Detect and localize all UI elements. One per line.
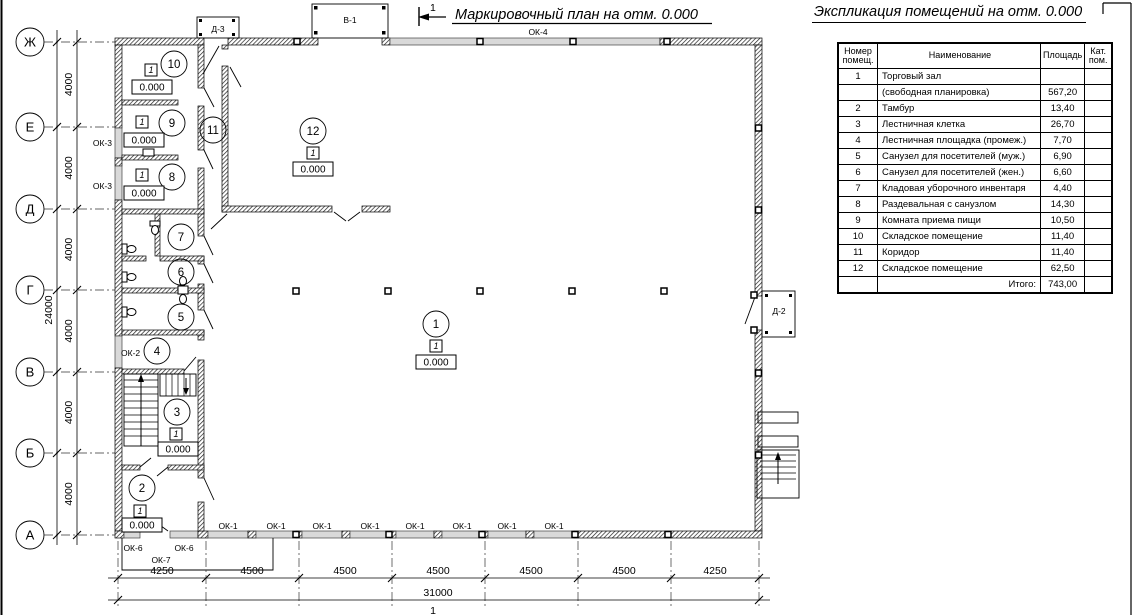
room-bubble-12: 12 — [300, 118, 326, 144]
room-bubble-7: 7 — [168, 224, 194, 250]
stair-room3 — [124, 374, 196, 446]
svg-text:0.000: 0.000 — [300, 165, 325, 176]
dim-4000: 4000 — [63, 156, 75, 180]
label-d2: Д-2 — [772, 306, 786, 316]
dim-4000: 4000 — [63, 319, 75, 343]
room-bubble-9: 9 — [159, 110, 185, 136]
svg-text:4: 4 — [154, 346, 161, 358]
svg-text:1: 1 — [139, 170, 144, 180]
svg-text:А: А — [26, 528, 35, 543]
svg-text:4500: 4500 — [333, 565, 357, 577]
table-row: 2Тамбур13,40 — [838, 101, 1112, 117]
dim-31000: 31000 — [423, 587, 452, 599]
label-ok1: ОК-1 — [497, 521, 516, 531]
dim-4000: 4000 — [63, 482, 75, 506]
axis-bubble-e: Е — [16, 113, 44, 141]
table-row: 8Раздевальная с санузлом14,30 — [838, 197, 1112, 213]
table-row: 10Складское помещение11,40 — [838, 229, 1112, 245]
label-ok6: ОК-6 — [123, 543, 142, 553]
left-dimensions: 4000 4000 4000 4000 4000 4000 24000 — [43, 30, 81, 545]
col-header-cat: Кат. пом. — [1085, 43, 1113, 69]
total-label: Итого: — [878, 277, 1041, 294]
svg-text:1: 1 — [139, 117, 144, 127]
label-ok4: ОК-4 — [528, 27, 547, 37]
row-axes: Ж Е Д Г В Б А — [16, 28, 115, 549]
room-bubble-5: 5 — [168, 304, 194, 330]
svg-text:0.000: 0.000 — [131, 136, 156, 147]
porch-d3: Д-3 — [197, 17, 239, 38]
window-ok1 — [396, 531, 434, 538]
label-ok6: ОК-6 — [174, 543, 193, 553]
room-bubble-10: 10 — [161, 51, 187, 77]
sink-icon — [143, 149, 154, 156]
axis-bubble-zh: Ж — [16, 28, 44, 56]
svg-text:4500: 4500 — [612, 565, 636, 577]
dim-4000: 4000 — [63, 401, 75, 425]
table-row: 5Санузел для посетителей (муж.)6,90 — [838, 149, 1112, 165]
svg-text:6: 6 — [178, 267, 184, 279]
axis-bubble-a: А — [16, 521, 44, 549]
svg-text:0.000: 0.000 — [423, 358, 448, 369]
label-ok1: ОК-1 — [266, 521, 285, 531]
window-ok3 — [115, 128, 122, 158]
label-ok1: ОК-1 — [218, 521, 237, 531]
stair-up-arrow-icon — [138, 374, 144, 382]
svg-text:7: 7 — [178, 232, 184, 244]
room-bubble-2: 2 — [129, 475, 155, 501]
svg-text:4500: 4500 — [519, 565, 543, 577]
axis-bubble-d: Д — [16, 195, 44, 223]
window-ok1 — [488, 531, 526, 538]
label-ok3: ОК-3 — [93, 181, 112, 191]
svg-text:1: 1 — [137, 506, 142, 516]
label-v1: В-1 — [343, 15, 357, 25]
schedule-header-row: Номер помещ. Наименование Площадь Кат. п… — [838, 43, 1112, 69]
table-row: (свободная планировка)567,20 — [838, 85, 1112, 101]
svg-text:9: 9 — [169, 118, 175, 130]
label-ok1: ОК-1 — [405, 521, 424, 531]
table-row: 12Складское помещение62,50 — [838, 261, 1112, 277]
label-ok1: ОК-1 — [312, 521, 331, 531]
interior-walls — [122, 45, 390, 531]
col-header-name: Наименование — [878, 43, 1041, 69]
window-ok1 — [302, 531, 342, 538]
svg-text:4250: 4250 — [150, 565, 174, 577]
svg-text:1: 1 — [173, 429, 178, 439]
axis-bubble-g: Г — [16, 276, 44, 304]
svg-text:2: 2 — [139, 483, 145, 495]
svg-text:4250: 4250 — [703, 565, 727, 577]
bottom-dimensions: 4250 4500 4500 4500 4500 4500 4250 31000… — [108, 541, 770, 615]
label-ok1: ОК-1 — [544, 521, 563, 531]
plan-title-group: Маркировочный план на отм. 0.000 1 — [418, 2, 712, 26]
svg-text:0.000: 0.000 — [165, 445, 190, 456]
room-bubble-1: 1 — [423, 311, 449, 337]
svg-text:1: 1 — [310, 148, 315, 158]
svg-text:4500: 4500 — [426, 565, 450, 577]
col-header-num: Номер помещ. — [838, 43, 878, 69]
porch-v1: В-1 — [312, 4, 388, 38]
label-ok2: ОК-2 — [121, 348, 140, 358]
toilet-icon — [122, 272, 136, 282]
svg-text:0.000: 0.000 — [131, 189, 156, 200]
drawing-sheet: { "plan": { "title": "Маркировочный план… — [0, 0, 1137, 615]
table-row: 9Комната приема пищи10,50 — [838, 213, 1112, 229]
dim-4000: 4000 — [63, 73, 75, 97]
window-ok3 — [115, 166, 122, 200]
label-d3: Д-3 — [211, 24, 225, 34]
label-ok3: ОК-3 — [93, 138, 112, 148]
window-ok6 — [170, 531, 198, 538]
schedule-title: Экспликация помещений на отм. 0.000 — [812, 4, 1086, 23]
axis-bubble-b: Б — [16, 439, 44, 467]
svg-text:1: 1 — [148, 65, 153, 75]
svg-text:3: 3 — [174, 407, 180, 419]
svg-text:8: 8 — [169, 172, 175, 184]
svg-text:5: 5 — [178, 312, 184, 324]
window-ok1 — [534, 531, 574, 538]
opening-labels: ОК-4 ОК-3 ОК-3 ОК-2 ОК-1 ОК-1 ОК-1 ОК-1 … — [93, 27, 564, 565]
external-stair — [757, 412, 799, 498]
svg-text:4500: 4500 — [240, 565, 264, 577]
schedule-total-row: Итого: 743,00 — [838, 277, 1112, 294]
svg-text:12: 12 — [307, 126, 320, 138]
table-row: 4Лестничная площадка (промеж.)7,70 — [838, 133, 1112, 149]
table-row: 3Лестничная клетка26,70 — [838, 117, 1112, 133]
total-value: 743,00 — [1041, 277, 1085, 294]
table-row: 11Коридор11,40 — [838, 245, 1112, 261]
dim-4000: 4000 — [63, 238, 75, 262]
col-header-area: Площадь — [1041, 43, 1085, 69]
window-ok4 — [390, 38, 660, 45]
svg-text:Г: Г — [26, 283, 33, 298]
axis-bubble-v: В — [16, 358, 44, 386]
window-ok1 — [350, 531, 390, 538]
window-ok1 — [442, 531, 482, 538]
svg-text:Е: Е — [26, 120, 35, 135]
toilet-icon — [122, 244, 136, 254]
ext-stair-arrow-icon — [775, 452, 781, 460]
svg-text:11: 11 — [207, 125, 219, 137]
room-bubble-3: 3 — [164, 399, 190, 425]
svg-text:Б: Б — [26, 446, 35, 461]
bottom-axis-mark: 1 — [430, 605, 436, 615]
window-ok1 — [256, 531, 296, 538]
table-row: 7Кладовая уборочного инвентаря4,40 — [838, 181, 1112, 197]
plan-title: Маркировочный план на отм. 0.000 — [455, 7, 698, 23]
table-row: 1Торговый зал — [838, 69, 1112, 85]
section-mark: 1 — [430, 2, 436, 14]
porch-d2: Д-2 — [762, 291, 795, 337]
svg-text:Ж: Ж — [24, 35, 36, 50]
svg-text:В: В — [26, 365, 35, 380]
svg-text:1: 1 — [433, 319, 439, 331]
svg-text:1: 1 — [433, 341, 438, 351]
room-bubble-4: 4 — [144, 338, 170, 364]
label-ok1: ОК-1 — [452, 521, 471, 531]
toilet-pair-icon — [178, 277, 188, 304]
toilet-icon — [122, 307, 136, 317]
svg-text:0.000: 0.000 — [129, 521, 154, 532]
label-ok7: ОК-7 — [151, 555, 170, 565]
schedule-table: Номер помещ. Наименование Площадь Кат. п… — [837, 42, 1113, 294]
table-row: 6Санузел для посетителей (жен.)6,60 — [838, 165, 1112, 181]
column-markers — [293, 39, 762, 538]
svg-text:10: 10 — [168, 59, 181, 71]
label-ok1: ОК-1 — [360, 521, 379, 531]
window-ok1 — [208, 531, 248, 538]
svg-text:Д: Д — [26, 202, 35, 217]
dim-24000: 24000 — [43, 295, 55, 324]
svg-text:0.000: 0.000 — [139, 83, 164, 94]
